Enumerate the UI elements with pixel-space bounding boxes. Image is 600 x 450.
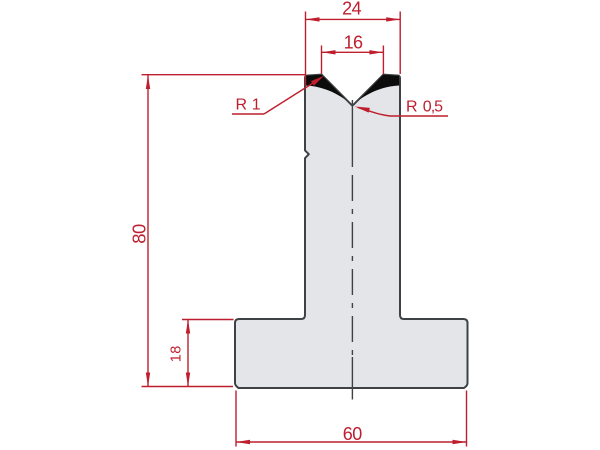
svg-text:0,5: 0,5 <box>423 99 443 116</box>
svg-text:16: 16 <box>344 32 363 52</box>
svg-text:24: 24 <box>342 0 361 19</box>
svg-text:1: 1 <box>252 96 261 113</box>
svg-text:R: R <box>236 96 248 113</box>
svg-text:R: R <box>406 99 418 116</box>
svg-text:18: 18 <box>169 345 185 362</box>
svg-text:80: 80 <box>129 224 150 244</box>
svg-text:60: 60 <box>343 424 362 444</box>
